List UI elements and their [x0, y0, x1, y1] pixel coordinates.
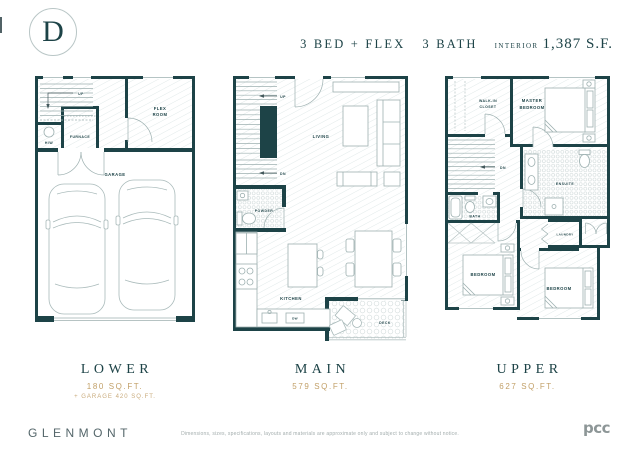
label-laundry: LAUNDRY: [556, 233, 574, 237]
label-bedroom-right: BEDROOM: [546, 286, 571, 291]
lower-caption-area: 180 SQ.FT.: [35, 382, 195, 391]
disclaimer-text: Dimensions, sizes, specifications, layou…: [170, 431, 470, 437]
spec-interior-value: 1,387 S.F.: [543, 36, 613, 53]
car-right: [116, 180, 178, 310]
label-walkin-2: CLOSET: [480, 105, 497, 109]
label-main-dn: DN: [280, 172, 286, 176]
label-master-2: BEDROOM: [519, 105, 544, 110]
hot-water-tank: [44, 127, 54, 137]
car-left: [46, 184, 108, 314]
label-flex-2: ROOM: [153, 112, 168, 117]
plan-letter-badge: D: [29, 8, 77, 56]
label-furnace: FURNACE: [70, 135, 90, 139]
label-kitchen: KITCHEN: [280, 296, 302, 301]
lower-caption: LOWER 180 SQ.FT. + GARAGE 420 SQ.FT.: [35, 362, 195, 400]
label-master-1: MASTER: [522, 98, 542, 103]
label-powder: POWDER: [255, 209, 273, 213]
spec-baths: 3 BATH: [422, 37, 477, 52]
label-garage: GARAGE: [104, 172, 125, 177]
upper-caption-title: UPPER: [449, 362, 610, 378]
spec-interior-label: INTERIOR: [495, 42, 539, 50]
page-edge-artifact: [0, 17, 2, 33]
label-hw: H/W: [45, 141, 53, 145]
label-up: UP: [78, 92, 84, 96]
label-deck: DECK: [379, 321, 391, 325]
label-dw: DW: [292, 317, 298, 321]
label-ensuite: ENSUITE: [556, 182, 575, 186]
main-caption-title: MAIN: [237, 362, 408, 378]
main-caption-area: 579 SQ.FT.: [233, 382, 408, 391]
label-flex-1: FLEX: [154, 106, 167, 111]
pcc-logo: pcc: [583, 419, 610, 437]
upper-cutout-left: [445, 310, 517, 322]
main-caption: MAIN 579 SQ.FT.: [233, 362, 408, 391]
plan-specs-header: 3 BED + FLEX 3 BATH INTERIOR 1,387 S.F.: [300, 36, 613, 53]
garage-overhead-door: [54, 318, 176, 321]
lower-caption-note: + GARAGE 420 SQ.FT.: [35, 394, 195, 400]
label-bath: BATH: [469, 215, 480, 219]
label-living: LIVING: [313, 134, 330, 139]
lower-floorplan: UP FURNACE H/W FLEX ROOM GARAGE: [35, 76, 195, 322]
spec-interior: INTERIOR 1,387 S.F.: [495, 36, 613, 53]
upper-floorplan: WALK-IN CLOSET MASTER BEDROOM DN ENSUITE…: [445, 76, 610, 322]
brand-glenmont: GLENMONT: [28, 426, 132, 440]
floorplan-page: D 3 BED + FLEX 3 BATH INTERIOR 1,387 S.F…: [0, 0, 640, 453]
label-walkin-1: WALK-IN: [479, 99, 497, 103]
upper-caption: UPPER 627 SQ.FT.: [445, 362, 610, 391]
upper-cutout-right: [600, 248, 610, 322]
label-main-up: UP: [280, 95, 286, 99]
upper-caption-area: 627 SQ.FT.: [445, 382, 610, 391]
lower-caption-title: LOWER: [39, 362, 195, 378]
main-floorplan: UP DN LIVING POWDER KITCHEN DW DECK: [233, 76, 408, 344]
spec-beds: 3 BED + FLEX: [300, 37, 405, 52]
label-upper-dn: DN: [500, 166, 506, 170]
label-bedroom-left: BEDROOM: [470, 272, 495, 277]
garage-doors: [58, 152, 104, 175]
plan-letter: D: [42, 17, 64, 47]
